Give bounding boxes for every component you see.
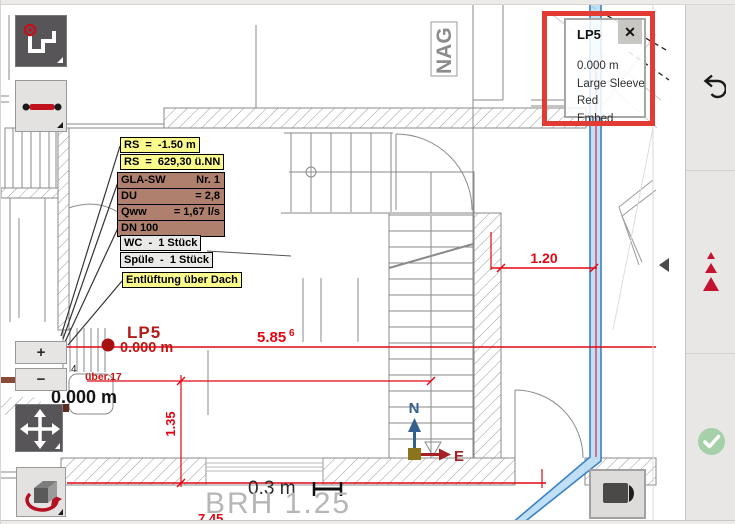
checkmark-icon: [698, 428, 725, 455]
tooltip-close-button[interactable]: ✕: [618, 20, 642, 44]
annotation-wc: WC - 1 Stück: [120, 235, 201, 251]
east-label: E: [454, 448, 464, 465]
lp5-point[interactable]: [102, 339, 115, 352]
route-tool-icon: [16, 16, 68, 68]
camera-icon: [591, 471, 644, 517]
sidebar-divider: [686, 353, 735, 354]
pan-tool-button[interactable]: [15, 404, 63, 452]
slope-triangles-icon: [699, 250, 723, 298]
gla-value: Nr. 1: [196, 174, 220, 188]
tooltip-items: 0.000 m Large Sleeve Red Embed: [577, 58, 645, 128]
annotation-rs-level: RS = 629,30 ü.NN: [120, 154, 224, 170]
north-label: N: [409, 400, 420, 417]
undo-icon: [696, 72, 726, 100]
gla-label: Qww: [121, 206, 147, 220]
pipe-segment-tool-button[interactable]: [15, 80, 67, 132]
gla-row: GLA-SW Nr. 1: [118, 173, 224, 189]
submenu-corner-arrow: [55, 443, 60, 449]
nag-room-label: NAG: [431, 22, 457, 76]
top-frame-strip: [1, 0, 735, 5]
rotate-3d-button[interactable]: [16, 467, 66, 517]
pipe-segment-icon: [16, 81, 68, 133]
confirm-button[interactable]: [698, 428, 725, 455]
tooltip-item-level: 0.000 m: [577, 58, 645, 76]
submenu-corner-arrow: [57, 122, 63, 128]
slope-marker-button[interactable]: [699, 250, 723, 298]
tread-number: 4: [71, 364, 77, 375]
action-sidebar: [685, 4, 735, 520]
nag-text: NAG: [433, 27, 456, 74]
dim-right: 1.20: [530, 250, 557, 266]
sidebar-divider: [686, 170, 735, 171]
annotation-sink: Spüle - 1 Stück: [120, 252, 213, 268]
annotation-vent: Entlüftung über Dach: [122, 272, 242, 288]
camera-view-button[interactable]: [589, 469, 646, 519]
tooltip-item-type: Large Sleeve: [577, 76, 645, 94]
annotation-gla-table: GLA-SW Nr. 1 DU = 2,8 Qww = 1,67 l/s DN …: [117, 172, 225, 237]
gla-row: DN 100: [118, 221, 224, 236]
zoom-in-button[interactable]: +: [15, 341, 67, 364]
undo-button[interactable]: [696, 72, 726, 100]
gla-label: DU: [121, 190, 137, 204]
tooltip-item-mode: Embed: [577, 111, 645, 129]
rotate-3d-icon: [17, 468, 67, 518]
gla-value: = 1,67 l/s: [174, 206, 220, 220]
gla-row: DU = 2,8: [118, 189, 224, 205]
pan-icon: [16, 405, 64, 453]
window-height-label: BRH 1.25: [205, 487, 351, 520]
element-info-tooltip: LP5 ✕ 0.000 m Large Sleeve Red Embed: [564, 18, 646, 118]
dim-main: 5.85: [257, 329, 286, 346]
dim-vertical: 1.35: [163, 411, 178, 436]
annotation-rs-depth: RS = -1.50 m: [120, 137, 200, 153]
zoom-out-button[interactable]: −: [15, 368, 67, 391]
gla-label: GLA-SW: [121, 174, 166, 188]
tooltip-item-color: Red: [577, 93, 645, 111]
level-scribble: über.17: [85, 371, 122, 383]
dim-main-sup: 6: [289, 328, 295, 339]
gla-label: DN 100: [121, 222, 158, 236]
cad-viewer-app: 5.85 6 1.20 1.35 7.45 über.17 LP5 0.000 …: [0, 0, 735, 524]
gla-row: Qww = 1,67 l/s: [118, 205, 224, 221]
lp5-level: 0.000 m: [120, 340, 173, 356]
submenu-corner-arrow: [58, 509, 63, 515]
submenu-corner-arrow: [57, 57, 63, 63]
bottom-frame-strip: [1, 520, 735, 524]
tooltip-title: LP5: [577, 27, 601, 42]
route-tool-button[interactable]: [15, 15, 67, 67]
gla-value: = 2,8: [195, 190, 220, 204]
